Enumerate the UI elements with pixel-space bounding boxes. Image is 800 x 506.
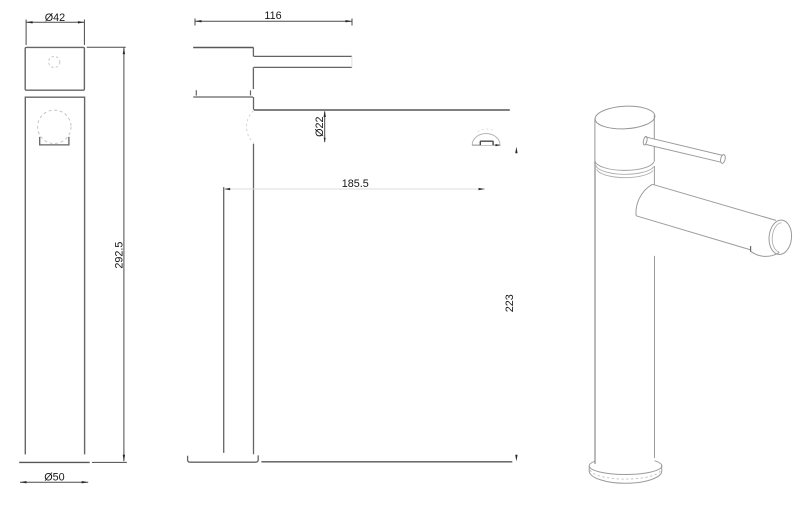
svg-text:292.5: 292.5 bbox=[114, 242, 126, 269]
svg-text:116: 116 bbox=[264, 10, 281, 22]
svg-text:223: 223 bbox=[504, 294, 516, 312]
svg-text:Ø50: Ø50 bbox=[44, 471, 64, 483]
svg-text:Ø22: Ø22 bbox=[314, 116, 326, 136]
svg-text:185.5: 185.5 bbox=[342, 178, 369, 190]
